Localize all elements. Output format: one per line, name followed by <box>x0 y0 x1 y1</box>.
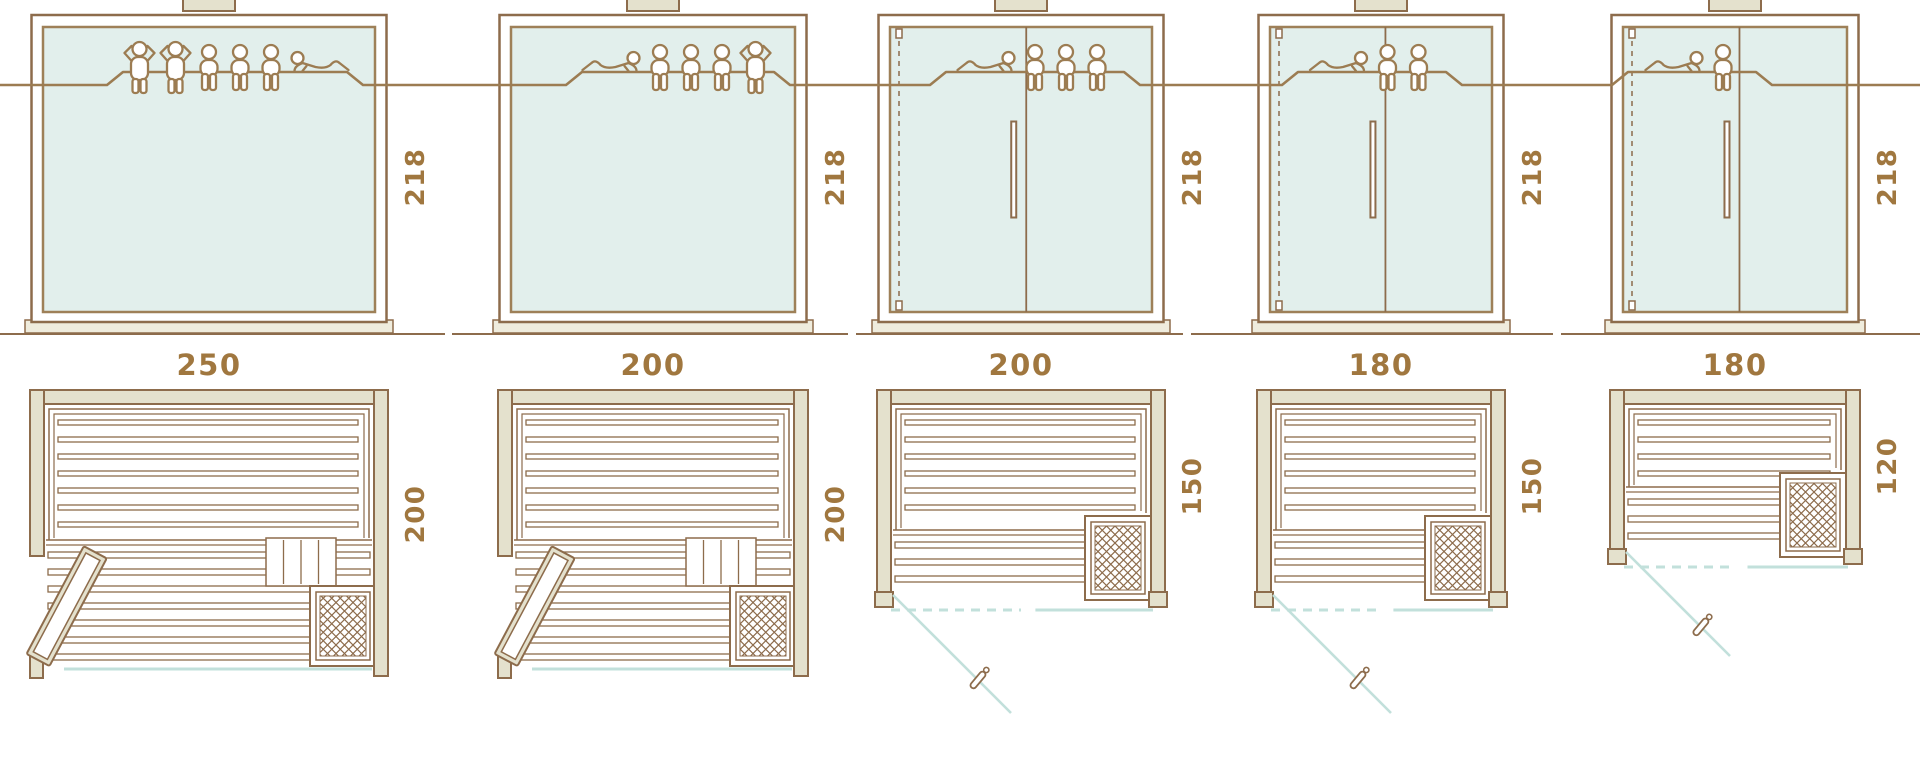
depth-dimension-label: 150 <box>1518 444 1548 528</box>
seated-person-icon <box>683 45 700 90</box>
heater-icon <box>310 586 376 666</box>
door-handle-icon <box>1349 666 1370 689</box>
side-bench-slats <box>686 538 756 586</box>
width-dimension-label: 200 <box>877 348 1165 382</box>
bench-frame <box>1276 409 1486 530</box>
top-wall <box>30 390 388 404</box>
ground-line <box>0 72 1920 85</box>
upper-bench-slats <box>58 420 358 527</box>
capacity-group <box>1646 45 1732 90</box>
seated-person-icon <box>652 45 669 90</box>
heater-icon <box>730 586 796 666</box>
floor-plan-drawing <box>498 390 808 770</box>
door-handle-icon <box>1011 122 1016 218</box>
seated-person-icon <box>201 45 218 90</box>
upper-bench-slats <box>905 420 1135 510</box>
capacity-group <box>583 42 771 93</box>
door-handle-icon <box>1370 122 1375 218</box>
upper-bench-slats <box>526 420 778 527</box>
height-dimension-label: 218 <box>821 135 851 219</box>
seated-person-icon <box>1410 45 1427 90</box>
capacity-figures-row <box>0 0 1920 110</box>
height-dimension-label: 218 <box>401 135 431 219</box>
reclining-person-icon <box>583 52 640 71</box>
sauna-comparison-diagram: 218 250 200 218 200 200 218 200 150 218 … <box>0 0 1920 770</box>
floor-plan-svg <box>1257 390 1505 735</box>
height-dimension-label: 218 <box>1873 135 1903 219</box>
left-wall <box>498 390 512 556</box>
top-wall <box>877 390 1165 404</box>
reclining-person-icon <box>292 52 349 71</box>
left-wall <box>30 390 44 556</box>
seated-person-icon <box>1058 45 1075 90</box>
upper-bench-slats <box>1638 420 1830 476</box>
right-wall <box>1151 390 1165 605</box>
top-wall <box>1610 390 1860 404</box>
floor-plan-svg <box>877 390 1165 735</box>
width-dimension-label: 180 <box>1257 348 1505 382</box>
door-handle-icon <box>969 666 990 689</box>
standing-person-icon <box>125 42 155 93</box>
seated-person-icon <box>232 45 249 90</box>
floor-plan-svg <box>498 390 808 770</box>
floor-plan-svg <box>1610 390 1860 692</box>
depth-dimension-label: 120 <box>1873 424 1903 508</box>
floor-plan-drawing <box>1257 390 1505 735</box>
reclining-person-icon <box>1310 52 1367 71</box>
seated-person-icon <box>1027 45 1044 90</box>
standing-person-icon <box>741 42 771 93</box>
depth-dimension-label: 200 <box>821 472 851 556</box>
width-dimension-label: 250 <box>30 348 388 382</box>
height-dimension-label: 218 <box>1178 135 1208 219</box>
left-wall <box>877 390 891 605</box>
width-dimension-label: 180 <box>1610 348 1860 382</box>
seated-person-icon <box>263 45 280 90</box>
upper-bench-slats <box>1285 420 1475 510</box>
floor-plan-svg <box>30 390 388 770</box>
floor-plan-drawing <box>877 390 1165 735</box>
heater-icon <box>1085 516 1151 600</box>
bench-frame <box>896 409 1146 530</box>
seated-person-icon <box>1715 45 1732 90</box>
depth-dimension-label: 200 <box>401 472 431 556</box>
capacity-group <box>1310 45 1427 90</box>
capacity-group <box>125 42 349 93</box>
width-dimension-label: 200 <box>498 348 808 382</box>
standing-person-icon <box>161 42 191 93</box>
capacity-group <box>958 45 1106 90</box>
heater-icon <box>1425 516 1491 600</box>
right-wall <box>374 390 388 676</box>
floor-plan-drawing <box>1610 390 1860 692</box>
top-wall <box>498 390 808 404</box>
left-wall <box>1610 390 1624 562</box>
top-wall <box>1257 390 1505 404</box>
left-wall <box>1257 390 1271 605</box>
side-bench-slats <box>266 538 336 586</box>
right-wall <box>1491 390 1505 605</box>
seated-person-icon <box>1379 45 1396 90</box>
seated-person-icon <box>1089 45 1106 90</box>
seated-person-icon <box>714 45 731 90</box>
door-swing-line <box>893 595 1011 713</box>
right-wall <box>1846 390 1860 562</box>
door-swing-line <box>1273 595 1391 713</box>
capacity-svg <box>0 0 1920 110</box>
heater-icon <box>1780 473 1846 557</box>
door-handle-icon <box>1692 613 1713 636</box>
height-dimension-label: 218 <box>1518 135 1548 219</box>
right-wall <box>794 390 808 676</box>
door-handle-icon <box>1724 122 1729 218</box>
floor-plan-drawing <box>30 390 388 770</box>
reclining-person-icon <box>958 52 1015 71</box>
depth-dimension-label: 150 <box>1178 444 1208 528</box>
reclining-person-icon <box>1646 52 1703 71</box>
